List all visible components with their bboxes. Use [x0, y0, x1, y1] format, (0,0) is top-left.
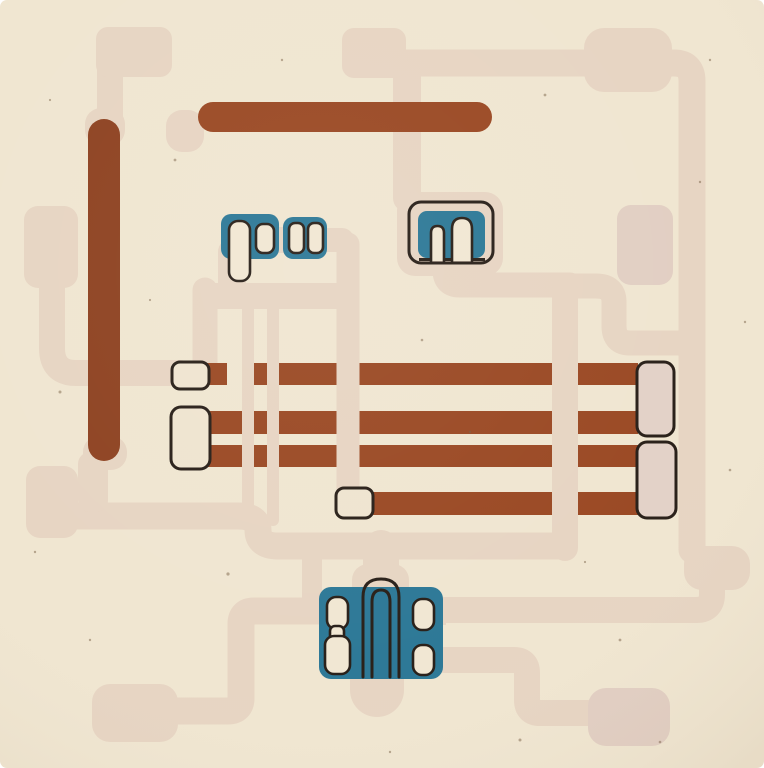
- vignette-overlay: [0, 0, 764, 768]
- painting-photo: [0, 0, 764, 768]
- circuit-painting: [0, 0, 764, 768]
- painted-panel: [0, 0, 764, 768]
